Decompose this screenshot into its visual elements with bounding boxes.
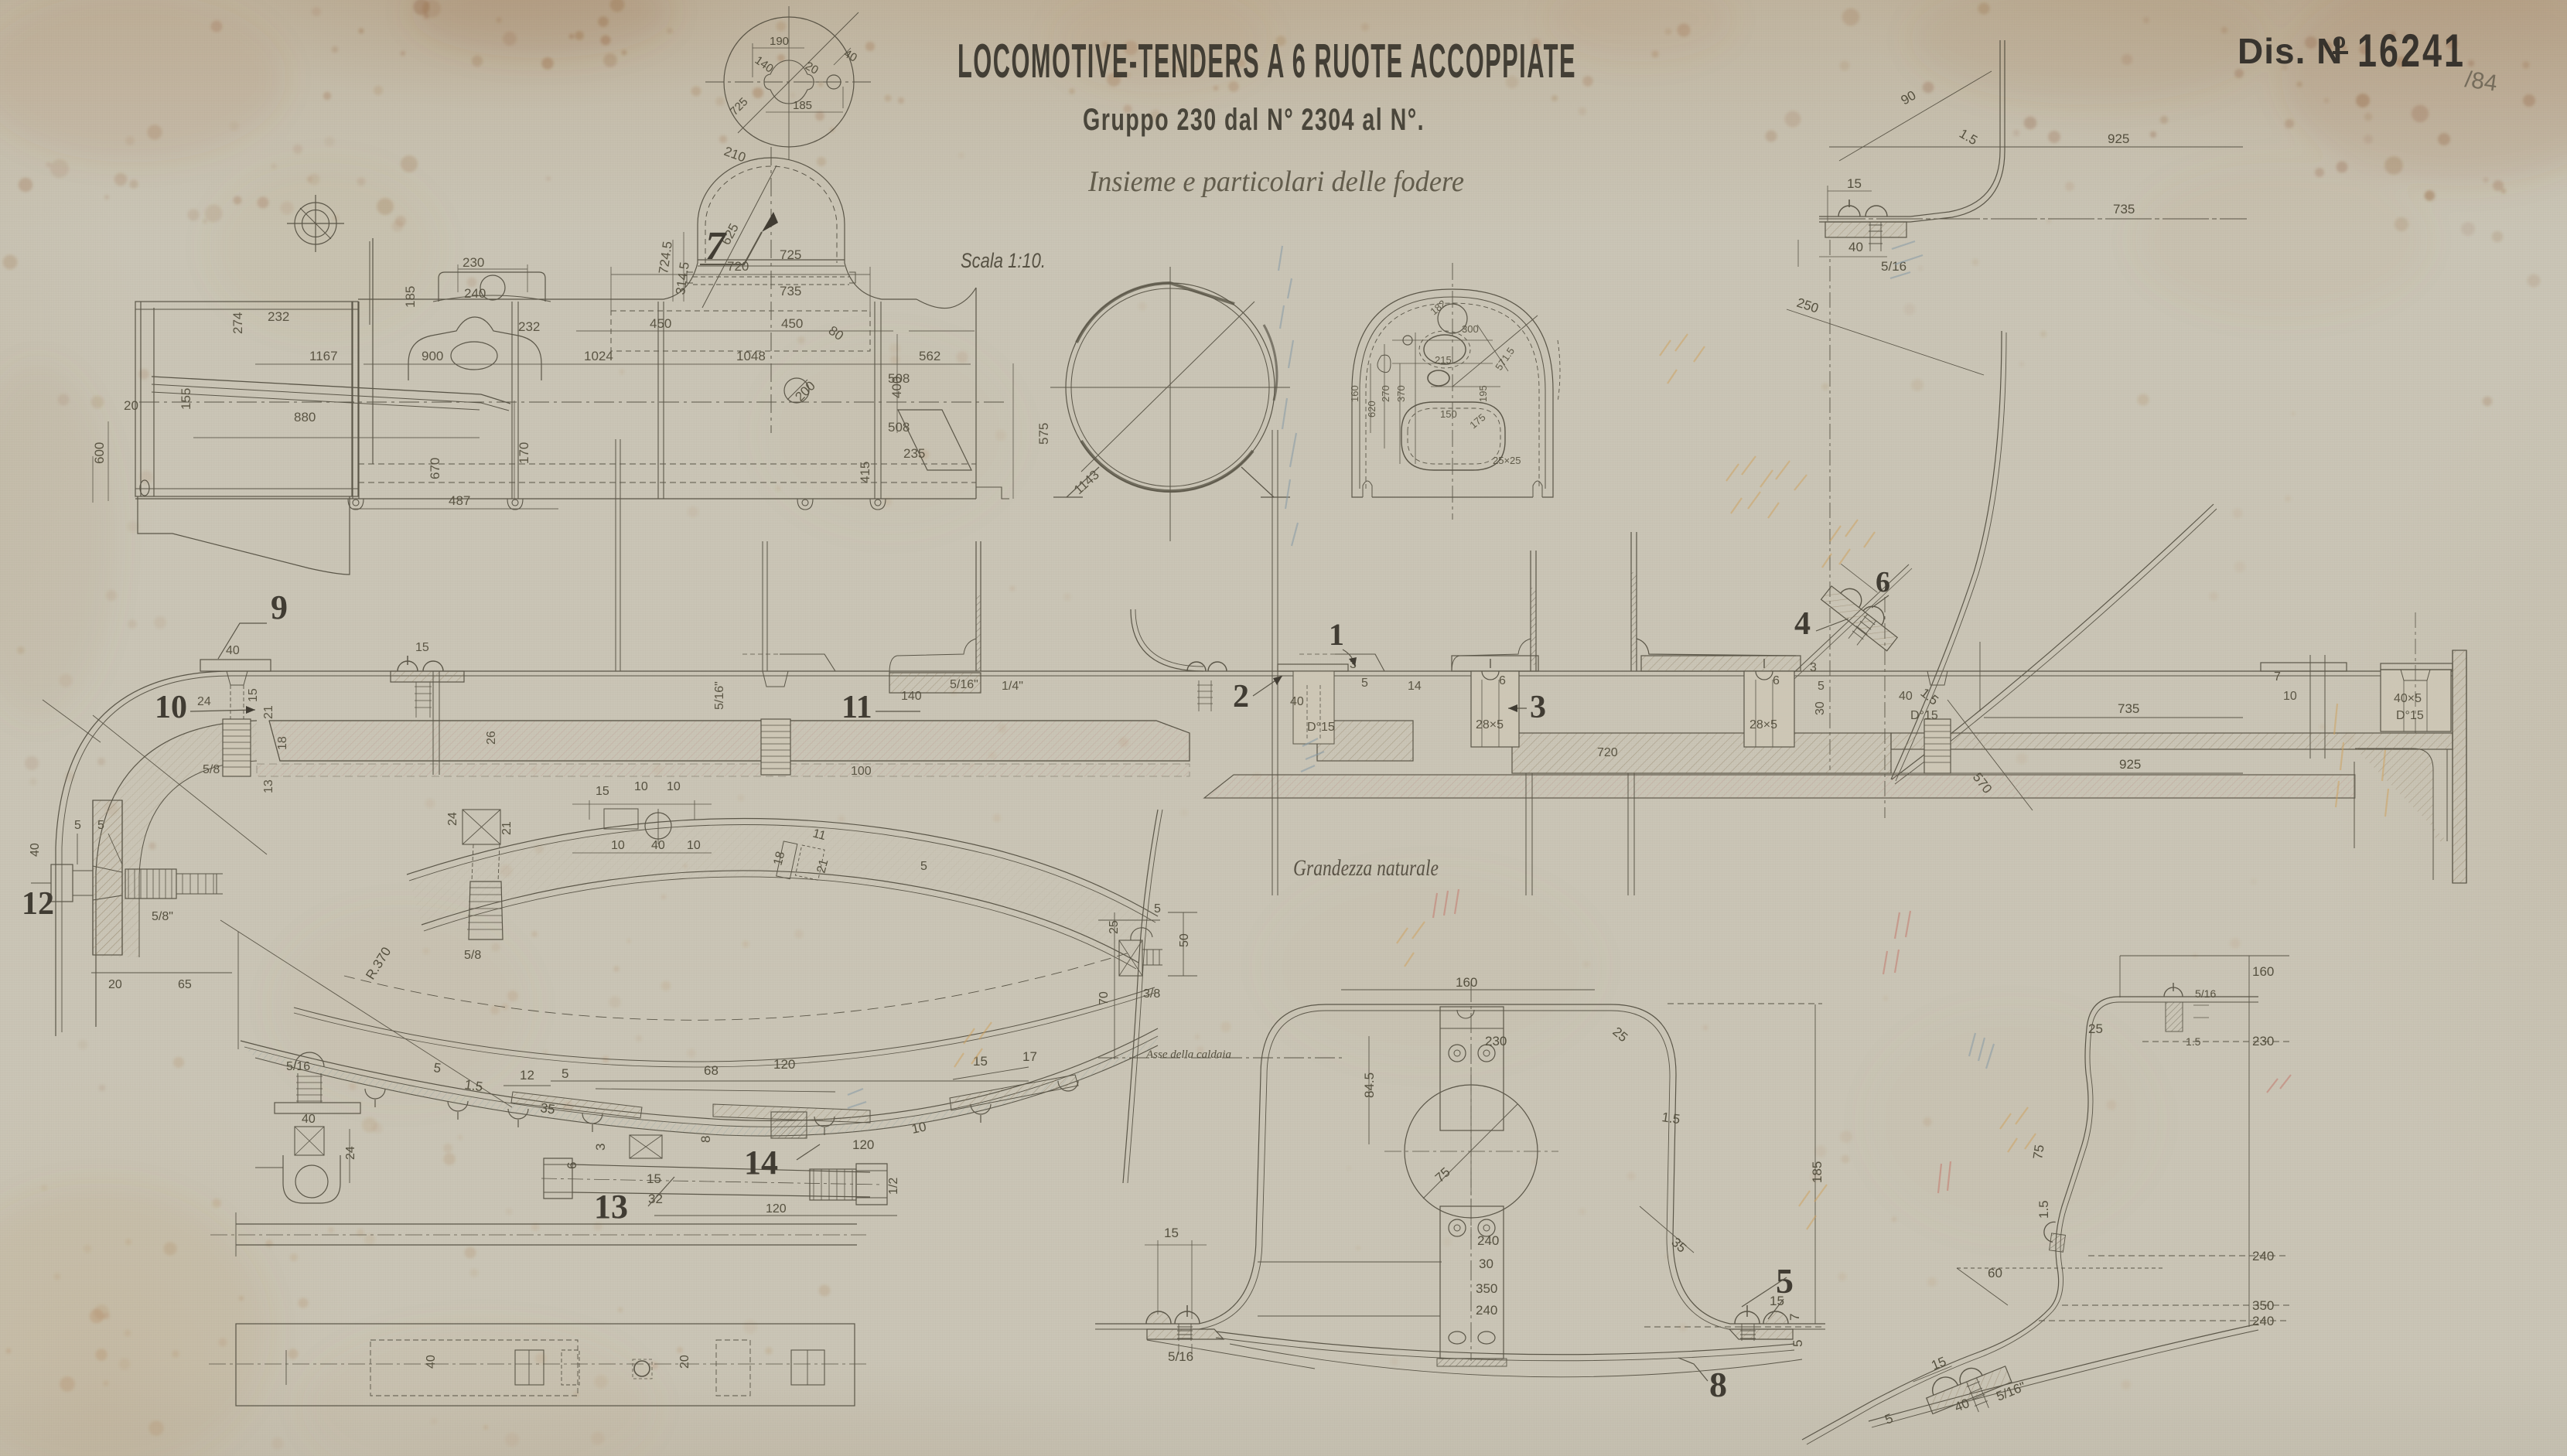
- svg-text:15: 15: [247, 688, 260, 702]
- svg-text:120: 120: [766, 1202, 787, 1216]
- svg-text:5: 5: [1883, 1411, 1895, 1427]
- svg-text:Grandezza naturale: Grandezza naturale: [1293, 855, 1439, 881]
- svg-text:25: 25: [1108, 920, 1121, 934]
- svg-text:28×5: 28×5: [1476, 718, 1504, 731]
- svg-text:9: 9: [271, 588, 288, 626]
- svg-text:235: 235: [903, 446, 925, 461]
- svg-text:70: 70: [1097, 991, 1111, 1005]
- svg-text:25×25: 25×25: [1493, 455, 1521, 466]
- svg-text:21: 21: [500, 821, 514, 835]
- svg-text:90: 90: [1899, 88, 1919, 108]
- svg-text:20: 20: [108, 978, 122, 991]
- svg-text:725: 725: [780, 247, 801, 262]
- svg-text:Dis. N: Dis. N: [2238, 31, 2343, 71]
- svg-text:65: 65: [178, 978, 192, 991]
- svg-text:8: 8: [698, 1136, 713, 1143]
- svg-text:40×5: 40×5: [2394, 692, 2422, 705]
- svg-text:575: 575: [1036, 423, 1051, 445]
- svg-text:350: 350: [1476, 1281, 1497, 1296]
- svg-text:10: 10: [611, 839, 625, 852]
- svg-text:240: 240: [1477, 1233, 1499, 1248]
- svg-text:880: 880: [294, 410, 316, 425]
- svg-text:185: 185: [793, 99, 812, 112]
- svg-text:230: 230: [1485, 1034, 1507, 1049]
- svg-text:600: 600: [92, 442, 107, 464]
- svg-text:16241: 16241: [2357, 25, 2466, 77]
- svg-text:5: 5: [1776, 1261, 1794, 1301]
- svg-text:75: 75: [2030, 1144, 2046, 1160]
- svg-text:140: 140: [901, 690, 922, 703]
- svg-text:80: 80: [826, 323, 846, 343]
- svg-text:1024: 1024: [584, 349, 613, 363]
- svg-text:40: 40: [1848, 240, 1863, 254]
- svg-text:Asse della caldaia: Asse della caldaia: [1145, 1049, 1231, 1061]
- svg-text:68: 68: [704, 1063, 719, 1078]
- svg-text:12: 12: [22, 886, 54, 922]
- svg-text:5: 5: [1818, 680, 1825, 693]
- svg-text:6: 6: [1876, 566, 1890, 598]
- svg-text:20: 20: [124, 398, 138, 413]
- svg-text:13: 13: [594, 1188, 628, 1226]
- svg-text:1.5: 1.5: [1957, 126, 1980, 148]
- svg-text:5: 5: [920, 860, 927, 873]
- svg-text:50: 50: [1178, 933, 1191, 947]
- svg-text:487: 487: [449, 493, 470, 508]
- svg-text:5: 5: [1790, 1340, 1805, 1347]
- svg-text:250: 250: [1795, 295, 1821, 316]
- svg-text:735: 735: [2113, 202, 2135, 217]
- svg-text:182: 182: [1428, 298, 1448, 317]
- svg-text:508: 508: [888, 420, 910, 435]
- svg-text:17: 17: [1022, 1049, 1037, 1064]
- svg-text:175: 175: [1467, 411, 1487, 431]
- svg-text:3: 3: [1530, 690, 1546, 725]
- svg-text:15: 15: [596, 785, 609, 798]
- svg-text:1.5: 1.5: [2036, 1200, 2051, 1219]
- svg-text:160: 160: [2252, 964, 2274, 979]
- svg-text:240: 240: [1476, 1303, 1497, 1318]
- svg-text:724.5: 724.5: [656, 240, 675, 275]
- svg-text:240: 240: [2252, 1249, 2274, 1263]
- svg-text:Insieme e particolari delle fo: Insieme e particolari delle fodere: [1087, 165, 1464, 198]
- svg-text:5: 5: [74, 819, 81, 832]
- svg-text:370: 370: [1395, 385, 1407, 402]
- svg-text:150: 150: [1440, 408, 1457, 420]
- svg-text:160: 160: [1349, 385, 1360, 402]
- svg-text:232: 232: [268, 309, 289, 324]
- svg-text:5: 5: [1154, 902, 1161, 916]
- svg-text:155: 155: [179, 388, 193, 410]
- svg-text:735: 735: [780, 284, 801, 298]
- svg-text:350: 350: [2252, 1298, 2274, 1313]
- svg-text:925: 925: [2108, 131, 2129, 146]
- svg-text:725: 725: [728, 95, 751, 118]
- svg-text:620: 620: [1366, 401, 1377, 418]
- svg-text:215: 215: [1435, 354, 1452, 366]
- svg-text:21: 21: [262, 705, 275, 719]
- svg-text:6: 6: [1499, 674, 1506, 687]
- svg-text:13: 13: [262, 779, 275, 793]
- svg-text:1143: 1143: [1071, 467, 1102, 497]
- svg-text:D°15: D°15: [1307, 721, 1335, 734]
- svg-text:5: 5: [432, 1060, 442, 1076]
- svg-text:5: 5: [562, 1066, 568, 1081]
- svg-text:35: 35: [539, 1100, 555, 1117]
- svg-text:26: 26: [485, 731, 498, 745]
- svg-text:40: 40: [425, 1355, 438, 1369]
- svg-text:450: 450: [781, 316, 803, 331]
- svg-text:25: 25: [1609, 1025, 1630, 1045]
- svg-text:6: 6: [1773, 674, 1780, 687]
- svg-text:1.5: 1.5: [1918, 685, 1941, 708]
- svg-text:230: 230: [2252, 1034, 2274, 1049]
- svg-text:240: 240: [464, 286, 486, 301]
- svg-text:7: 7: [1787, 1314, 1802, 1321]
- svg-text:15: 15: [1847, 176, 1862, 191]
- svg-text:30: 30: [1814, 701, 1827, 715]
- svg-text:75: 75: [1432, 1164, 1453, 1185]
- svg-text:24: 24: [344, 1146, 357, 1160]
- svg-text:232: 232: [518, 319, 540, 334]
- svg-text:20: 20: [803, 60, 821, 77]
- svg-text:160: 160: [1456, 975, 1477, 990]
- svg-text:15: 15: [415, 641, 429, 654]
- svg-text:195: 195: [1477, 385, 1489, 402]
- svg-text:5/8: 5/8: [464, 949, 481, 962]
- svg-text:15: 15: [1929, 1354, 1948, 1373]
- svg-text:120: 120: [852, 1137, 874, 1152]
- svg-text:8: 8: [1709, 1365, 1727, 1404]
- svg-text:7: 7: [2274, 670, 2281, 684]
- svg-text:5/8: 5/8: [203, 763, 220, 776]
- svg-text:10: 10: [634, 780, 648, 793]
- svg-text:190: 190: [770, 35, 789, 48]
- svg-text:562: 562: [919, 349, 940, 363]
- svg-text:20: 20: [678, 1355, 691, 1369]
- svg-text:D°15: D°15: [1910, 709, 1938, 722]
- svg-text:14: 14: [1408, 680, 1422, 693]
- svg-text:4: 4: [1794, 606, 1811, 642]
- svg-text:314.5: 314.5: [673, 261, 692, 296]
- svg-text:120: 120: [773, 1057, 795, 1072]
- svg-text:15: 15: [647, 1171, 661, 1186]
- svg-text:5/8": 5/8": [152, 910, 173, 923]
- svg-text:30: 30: [1479, 1257, 1493, 1271]
- svg-text:925: 925: [2119, 757, 2141, 772]
- svg-text:40: 40: [226, 644, 240, 657]
- svg-text:508: 508: [888, 371, 910, 386]
- svg-text:5: 5: [1361, 677, 1368, 690]
- svg-text:40: 40: [1290, 695, 1304, 708]
- svg-text:7: 7: [705, 224, 727, 268]
- svg-text:2: 2: [1233, 679, 1249, 714]
- svg-text:450: 450: [650, 316, 671, 331]
- svg-text:1167: 1167: [309, 349, 338, 363]
- svg-text:Scala 1:10.: Scala 1:10.: [961, 249, 1046, 272]
- svg-text:274: 274: [230, 312, 245, 334]
- svg-text:240: 240: [2252, 1314, 2274, 1328]
- svg-text:735: 735: [2118, 701, 2139, 716]
- svg-text:40: 40: [302, 1113, 316, 1126]
- svg-text:5/16: 5/16: [1168, 1349, 1193, 1364]
- svg-text:100: 100: [851, 765, 872, 778]
- svg-text:900: 900: [422, 349, 443, 363]
- svg-text:10: 10: [155, 690, 187, 725]
- svg-text:35: 35: [1668, 1235, 1689, 1256]
- svg-text:D°15: D°15: [2396, 709, 2424, 722]
- svg-text:15: 15: [1164, 1226, 1179, 1240]
- svg-text:15: 15: [973, 1054, 988, 1069]
- svg-text:1: 1: [1329, 617, 1344, 652]
- svg-text:18: 18: [276, 736, 289, 750]
- svg-text:14: 14: [744, 1144, 778, 1182]
- svg-text:24: 24: [197, 695, 211, 708]
- svg-text:11: 11: [841, 690, 872, 725]
- svg-text:Gruppo 230 dal N° 2304 al N°.: Gruppo 230 dal N° 2304 al N°.: [1083, 103, 1425, 137]
- svg-text:25: 25: [2088, 1021, 2103, 1036]
- svg-text:185: 185: [1810, 1161, 1825, 1183]
- svg-text:415: 415: [858, 462, 872, 483]
- svg-text:10: 10: [2283, 690, 2297, 703]
- svg-text:LOCOMOTIVE-TENDERS A 6 RUOTE A: LOCOMOTIVE-TENDERS A 6 RUOTE ACCOPPIATE: [958, 35, 1576, 88]
- svg-text:28×5: 28×5: [1749, 718, 1777, 731]
- svg-text:230: 230: [463, 255, 484, 270]
- svg-text:3: 3: [1810, 661, 1817, 674]
- svg-text:1/2: 1/2: [887, 1178, 900, 1195]
- svg-text:571.5: 571.5: [1493, 345, 1517, 372]
- svg-text:5/16: 5/16: [2195, 987, 2216, 1000]
- svg-text:10: 10: [687, 839, 701, 852]
- svg-text:40: 40: [29, 843, 42, 857]
- svg-text:300: 300: [1462, 323, 1479, 335]
- svg-text:185: 185: [403, 286, 418, 308]
- svg-text:5/16": 5/16": [950, 678, 978, 691]
- svg-text:24: 24: [446, 812, 459, 826]
- svg-text:1/4": 1/4": [1002, 680, 1023, 693]
- svg-text:/84: /84: [2463, 66, 2499, 96]
- svg-text:5/16": 5/16": [713, 681, 726, 710]
- svg-text:10: 10: [910, 1119, 927, 1137]
- svg-text:720: 720: [1597, 746, 1618, 759]
- svg-text:3/8: 3/8: [1143, 987, 1160, 1001]
- svg-text:1048: 1048: [736, 349, 766, 363]
- svg-text:84.5: 84.5: [1362, 1072, 1377, 1098]
- svg-text:R.370: R.370: [363, 945, 394, 983]
- svg-text:3: 3: [593, 1144, 608, 1151]
- svg-text:40: 40: [841, 47, 859, 65]
- svg-text:1.5: 1.5: [1661, 1110, 1681, 1127]
- svg-text:o: o: [2333, 29, 2346, 53]
- svg-text:140: 140: [753, 53, 776, 75]
- svg-text:60: 60: [1988, 1266, 2002, 1280]
- svg-text:12: 12: [520, 1068, 534, 1083]
- svg-text:40: 40: [651, 839, 665, 852]
- svg-text:170: 170: [517, 442, 531, 464]
- svg-text:200: 200: [792, 378, 818, 404]
- svg-text:5: 5: [97, 819, 104, 832]
- svg-text:1.5: 1.5: [463, 1077, 483, 1094]
- svg-text:270: 270: [1380, 385, 1391, 402]
- svg-text:10: 10: [667, 780, 681, 793]
- svg-text:210: 210: [722, 144, 748, 165]
- svg-text:5/16: 5/16: [286, 1060, 310, 1073]
- svg-text:40: 40: [1899, 690, 1913, 703]
- svg-text:670: 670: [428, 458, 442, 479]
